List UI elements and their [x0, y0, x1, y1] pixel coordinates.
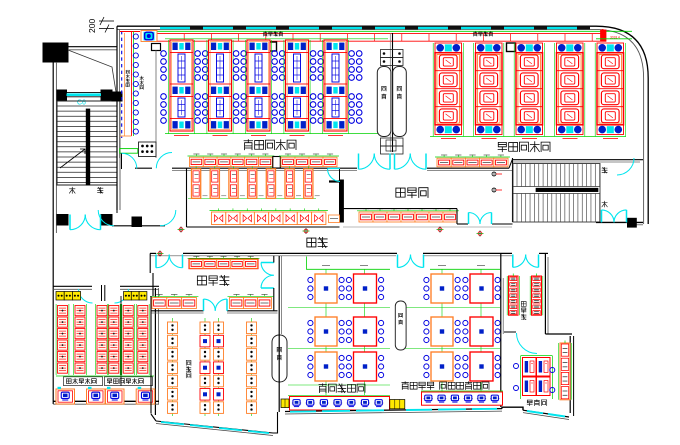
svg-text:200: 200	[87, 19, 97, 33]
